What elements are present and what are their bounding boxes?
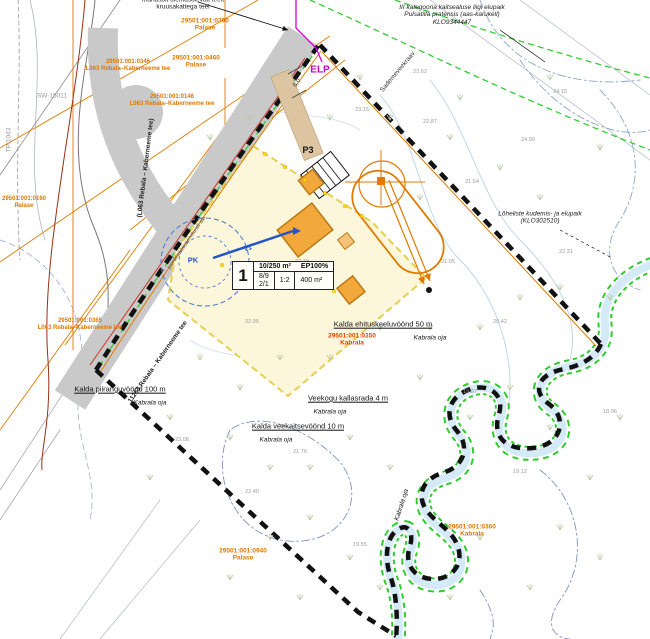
plot-area-value: 10/250 m² — [254, 262, 296, 271]
plot-floors-value: 8/9 — [259, 273, 269, 281]
stream — [387, 264, 650, 639]
plot-info-table: 1 10/250 m² EP100% 8/9 2/1 1:2 400 m² — [232, 261, 334, 290]
plot-buildings-value: 2/1 — [259, 281, 269, 289]
plot-ratio-value: 1:2 — [274, 272, 295, 289]
site-plan-canvas — [0, 0, 650, 639]
plot-footprint-value: 400 m² — [294, 272, 327, 289]
plot-number: 1 — [233, 262, 254, 289]
site-plan-page: mahasõit olemasolevalt teeltkruusakatteg… — [0, 0, 650, 639]
plot-intensity-value: EP100% — [296, 262, 333, 271]
